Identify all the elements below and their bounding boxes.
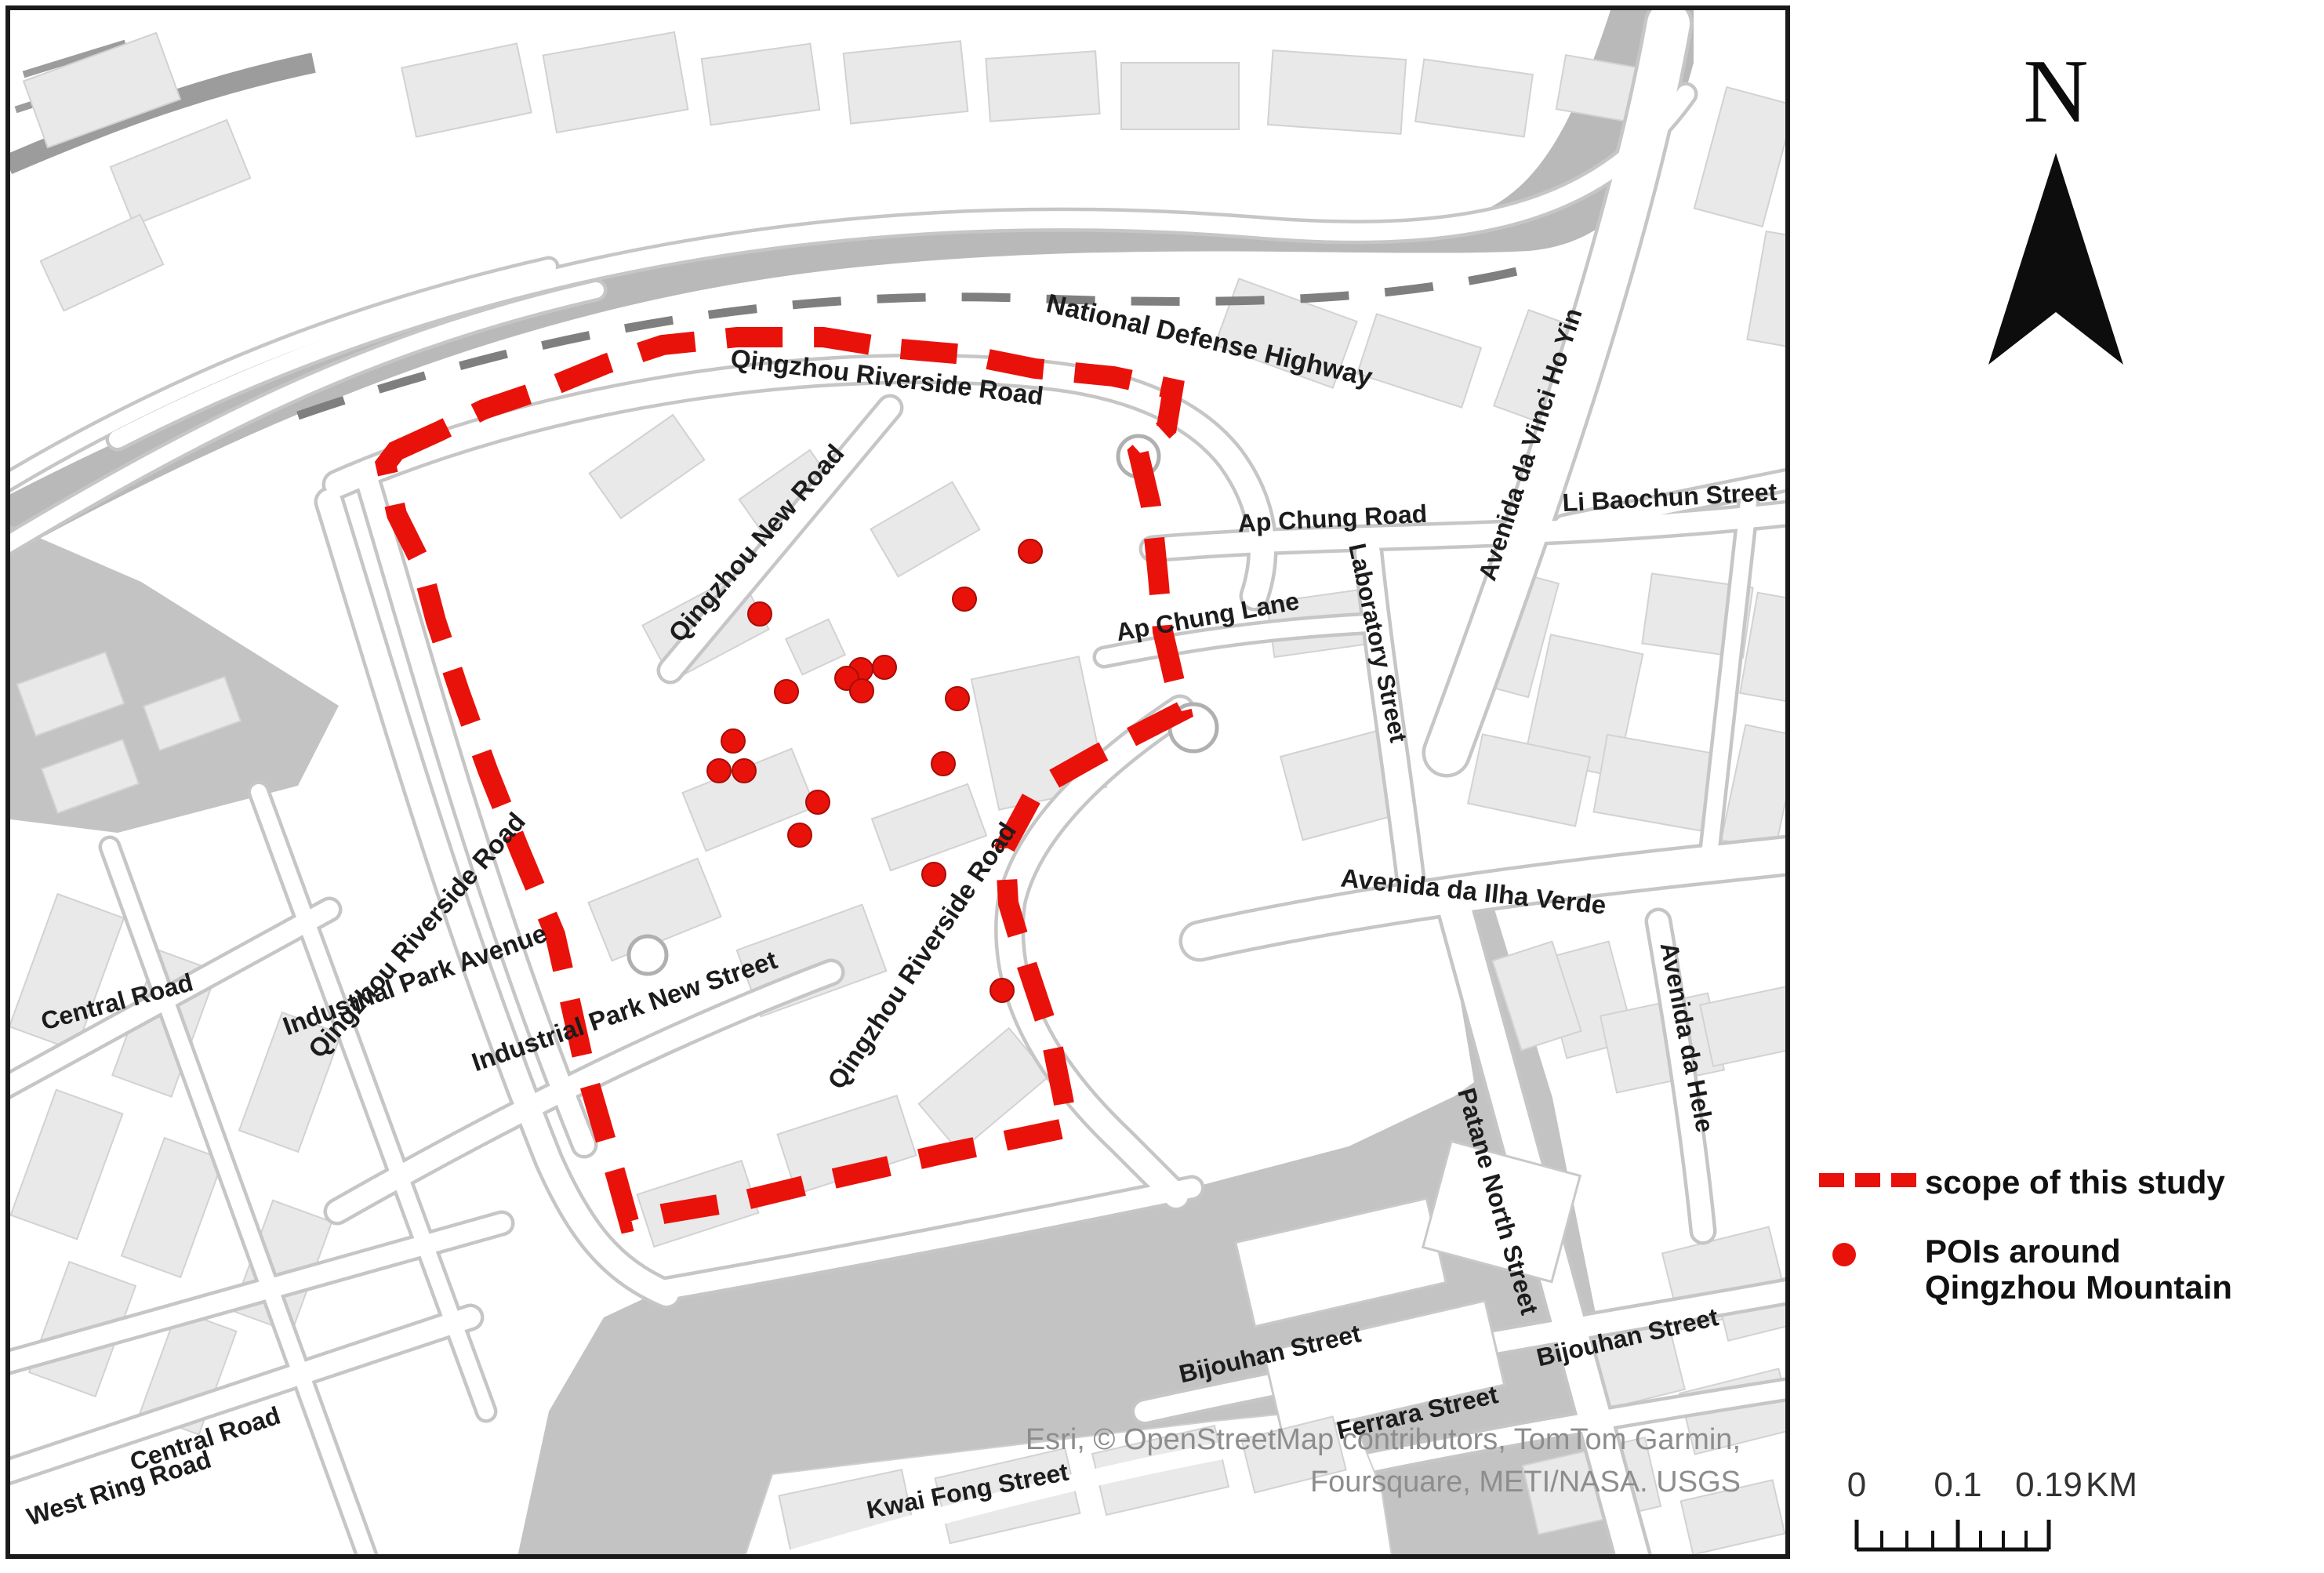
legend-poi-dot-icon — [1832, 1243, 1856, 1266]
north-arrow-letter: N — [2023, 42, 2088, 141]
scalebar-tick-0: 0 — [1847, 1466, 1866, 1504]
building-block — [786, 619, 845, 675]
road — [670, 408, 890, 670]
north-arrow-icon — [1988, 153, 2123, 365]
map-canvas: National Defense HighwayQingzhou Riversi… — [0, 0, 2324, 1573]
poi-dot — [788, 823, 812, 847]
poi-dot — [850, 679, 873, 703]
building-block — [1415, 60, 1533, 137]
legend-dash-icon — [1855, 1173, 1880, 1187]
scalebar-unit: KM — [2086, 1466, 2137, 1504]
legend-dash-icon — [1819, 1173, 1844, 1187]
building-block — [986, 51, 1099, 122]
building-block — [122, 1138, 223, 1277]
poi-dot — [775, 680, 798, 703]
building-block — [41, 215, 163, 311]
poi-dot — [1019, 539, 1042, 563]
building-block — [1357, 314, 1481, 407]
poi-dot — [873, 656, 896, 679]
building-block — [1700, 980, 1828, 1066]
roundabout — [629, 936, 666, 974]
legend-dash-icon — [1891, 1173, 1916, 1187]
poi-dot — [922, 863, 946, 886]
building-block — [1268, 50, 1406, 134]
poi-dot — [721, 729, 745, 753]
scalebar-tick-01: 0.1 — [1934, 1466, 1981, 1504]
building-block — [844, 41, 968, 123]
building-block — [1747, 231, 1820, 349]
map-layers: National Defense HighwayQingzhou Riversi… — [0, 8, 1828, 1564]
legend-scope-label: scope of this study — [1925, 1164, 2225, 1201]
building-block — [543, 32, 688, 133]
poi-dot — [931, 752, 955, 776]
poi-dot — [748, 602, 772, 626]
poi-dot — [806, 790, 830, 814]
scalebar-tick-019: 0.19 — [2015, 1466, 2083, 1504]
building-block — [702, 44, 819, 125]
poi-dot — [946, 687, 969, 710]
figure-study-area-map: National Defense HighwayQingzhou Riversi… — [0, 0, 2324, 1573]
building-block — [11, 1090, 123, 1240]
building-block — [590, 415, 705, 518]
poi-dot — [953, 587, 976, 611]
poi-dot — [707, 759, 731, 783]
building-block — [401, 43, 531, 136]
poi-dot — [990, 979, 1014, 1002]
building-block — [1694, 87, 1795, 227]
legend-poi-label-line2: Qingzhou Mountain — [1925, 1269, 2232, 1306]
attribution-line-2: Foursquare, METI/NASA. USGS — [1310, 1466, 1741, 1499]
building-block — [871, 482, 980, 577]
attribution-line-1: Esri, © OpenStreetMap contributors, TomT… — [1026, 1423, 1741, 1456]
poi-dot — [732, 759, 756, 783]
building-block — [1121, 63, 1239, 129]
legend-poi-label-line1: POIs around — [1925, 1233, 2121, 1270]
building-block — [111, 120, 250, 225]
building-block — [872, 784, 986, 870]
